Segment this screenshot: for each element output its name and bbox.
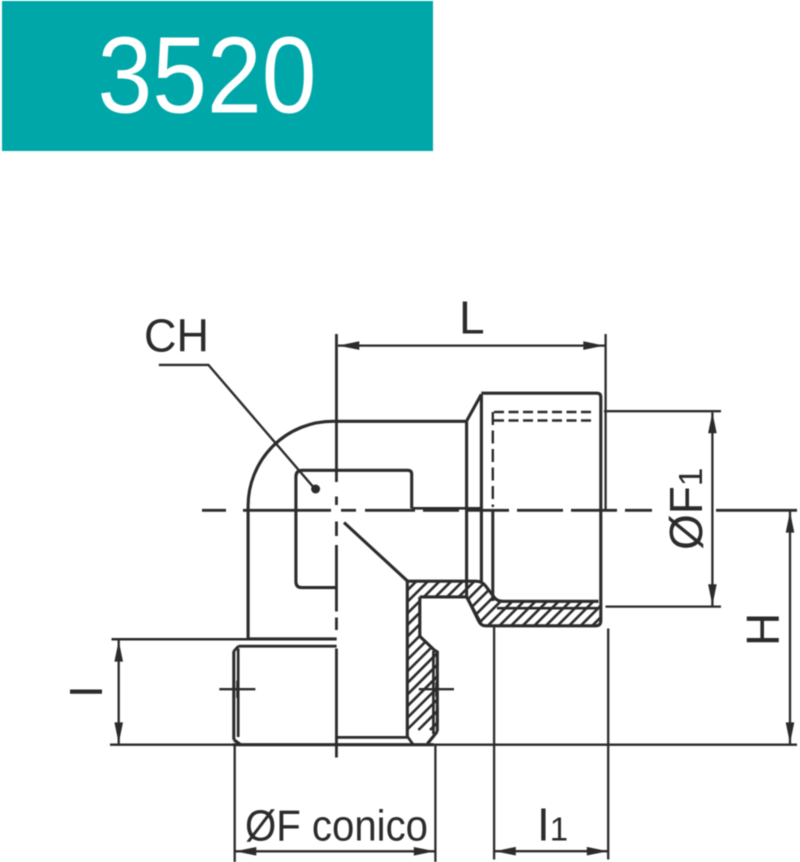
svg-text:CH: CH [144,310,209,362]
svg-text:L: L [459,292,485,344]
svg-text:ØF1: ØF1 [660,468,712,550]
svg-text:ØF conico: ØF conico [245,802,428,851]
svg-text:H: H [737,613,789,646]
svg-text:I: I [60,685,112,698]
svg-text:I1: I1 [537,799,568,851]
svg-text:3520: 3520 [98,15,317,136]
